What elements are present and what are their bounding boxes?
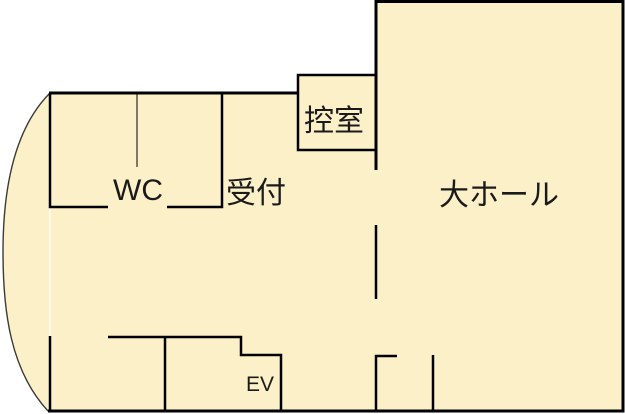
reception-label: 受付: [226, 177, 286, 210]
wc-label: WC: [113, 174, 163, 207]
floor-plan: WC 受付 控室 大ホール EV: [0, 0, 625, 414]
main-hall-label: 大ホール: [439, 179, 559, 212]
floor-plan-canvas: WC 受付 控室 大ホール EV: [0, 0, 625, 414]
waiting-room-label: 控室: [304, 105, 364, 138]
elevator-label: EV: [246, 373, 274, 396]
